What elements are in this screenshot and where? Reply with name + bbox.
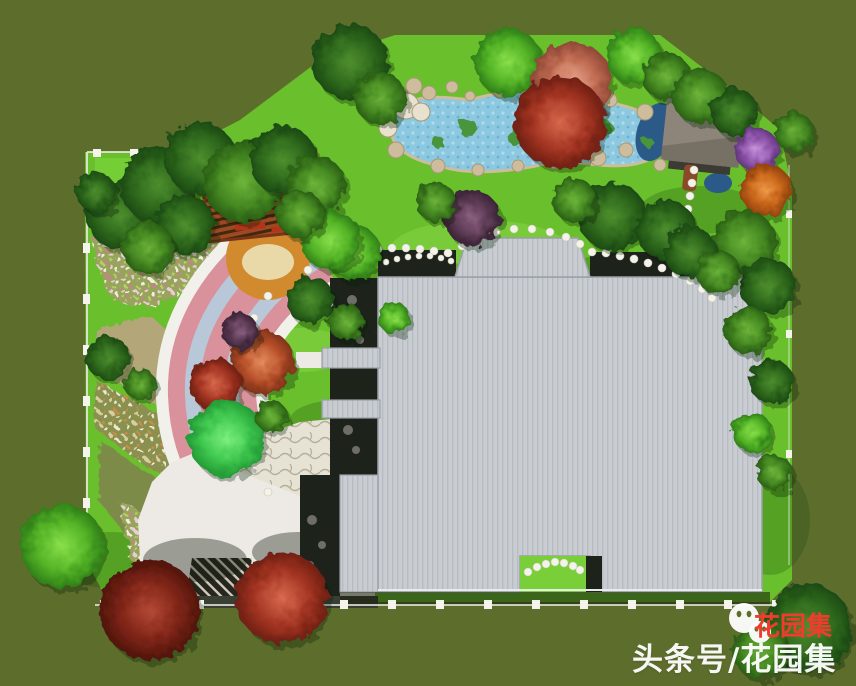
- tree: [255, 400, 287, 432]
- fence-post: [786, 450, 792, 458]
- stepping-stone: [542, 560, 550, 568]
- stepping-stone: [560, 559, 568, 567]
- rock: [619, 143, 633, 157]
- rock: [472, 164, 484, 176]
- fence-post: [436, 600, 444, 609]
- courtyard-stone: [347, 295, 357, 305]
- stepping-stone: [533, 563, 541, 571]
- stepping-stone: [569, 562, 577, 570]
- flagstone-side-path: [296, 352, 322, 368]
- tree: [20, 504, 104, 588]
- main-building: [300, 238, 770, 605]
- aquatic-plant: [643, 137, 653, 147]
- stepping-stone: [588, 248, 596, 256]
- tree: [724, 306, 772, 354]
- courtyard-stone: [343, 425, 353, 435]
- rock: [388, 142, 404, 158]
- stepping-stone: [688, 179, 696, 187]
- rock: [422, 86, 436, 100]
- stepping-stone: [690, 166, 698, 174]
- tree: [552, 178, 596, 222]
- stepping-stone: [576, 566, 584, 574]
- stepping-stone: [444, 249, 452, 257]
- stepping-stone: [546, 228, 554, 236]
- pond-deep-pool-small: [704, 173, 732, 193]
- stepping-stone: [686, 192, 694, 200]
- tree: [354, 72, 406, 124]
- stepping-stone: [448, 258, 454, 264]
- fence-post: [532, 600, 540, 609]
- tree: [378, 302, 410, 334]
- tree: [222, 313, 258, 349]
- rock: [654, 159, 666, 171]
- rock: [512, 160, 524, 172]
- rock: [406, 78, 422, 94]
- tree: [236, 552, 328, 644]
- fence-post: [83, 447, 90, 457]
- building-wing-upper: [322, 348, 380, 368]
- building-roof-extension: [340, 475, 378, 592]
- tree: [710, 88, 758, 136]
- sand-pit: [242, 244, 294, 280]
- rock: [431, 159, 445, 173]
- building-main-roof: [378, 277, 762, 592]
- fence-post: [93, 149, 101, 157]
- stepping-stone: [405, 254, 411, 260]
- stepping-stone: [304, 266, 312, 274]
- tree: [732, 412, 772, 452]
- tree: [514, 76, 606, 168]
- stepping-stone: [510, 225, 518, 233]
- rock: [637, 104, 653, 120]
- stepping-stone: [658, 264, 666, 272]
- watermark: 花园集 头条号/花园集: [628, 598, 856, 684]
- courtyard-notch-dark: [586, 556, 602, 592]
- fence-post: [83, 498, 90, 508]
- tree: [122, 222, 174, 274]
- courtyard-stone: [318, 541, 326, 549]
- stepping-stone: [438, 255, 444, 261]
- tree: [740, 164, 792, 216]
- fence-post: [83, 243, 90, 253]
- stepping-stone: [427, 253, 433, 259]
- stepping-stone: [416, 253, 422, 259]
- tree: [188, 400, 264, 476]
- courtyard-left-c: [330, 418, 378, 475]
- aquatic-plant: [459, 119, 477, 137]
- fence-post: [340, 600, 348, 609]
- tree: [328, 304, 364, 340]
- courtyard-stone: [307, 515, 317, 525]
- tree: [286, 276, 334, 324]
- watermark-white-text: 头条号/花园集: [632, 634, 836, 679]
- stepping-stone: [644, 259, 652, 267]
- stepping-stone: [576, 240, 584, 248]
- garden-scene: [0, 0, 856, 686]
- fence-post: [484, 600, 492, 609]
- fence-post: [83, 396, 90, 406]
- courtyard-stone: [352, 446, 360, 454]
- tree: [124, 368, 156, 400]
- tree: [276, 190, 324, 238]
- courtyard-left-b: [330, 368, 378, 400]
- tree: [740, 258, 796, 314]
- garden-aerial-render: 花园集 头条号/花园集: [0, 0, 856, 686]
- fence-post: [83, 294, 90, 304]
- tree: [100, 560, 200, 660]
- building-wing-lower: [322, 400, 380, 418]
- stepping-stone: [264, 292, 272, 300]
- stepping-stone: [394, 256, 400, 262]
- fence-post: [388, 600, 396, 609]
- stepping-stone: [416, 245, 424, 253]
- rock: [446, 81, 458, 93]
- stepping-stone: [551, 558, 559, 566]
- stepping-stone: [388, 244, 396, 252]
- tree: [86, 336, 130, 380]
- stepping-stone: [383, 259, 389, 265]
- stepping-stone: [528, 225, 536, 233]
- fence-post: [580, 600, 588, 609]
- rock: [412, 103, 430, 121]
- stepping-stone: [524, 568, 532, 576]
- tree: [416, 182, 456, 222]
- aquatic-plant: [432, 136, 444, 148]
- tree: [750, 360, 794, 404]
- rock: [465, 91, 475, 101]
- tree: [696, 250, 740, 294]
- tree: [76, 172, 116, 212]
- stepping-stone: [562, 233, 570, 241]
- tree: [774, 112, 814, 152]
- stepping-stone: [402, 244, 410, 252]
- tree: [756, 454, 792, 490]
- stepping-stone: [630, 255, 638, 263]
- fence-post: [786, 330, 792, 338]
- stepping-stone: [264, 488, 272, 496]
